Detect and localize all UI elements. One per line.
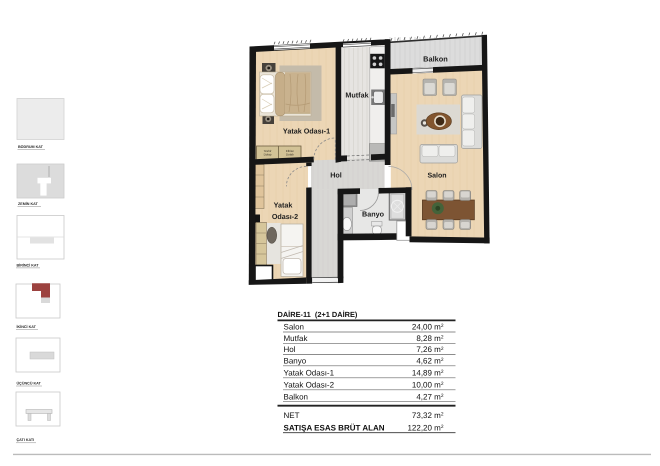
svg-text:7,26 m2: 7,26 m2 — [416, 345, 443, 354]
svg-text:Hol: Hol — [284, 345, 296, 354]
svg-text:Dolab: Dolab — [286, 153, 294, 157]
svg-text:BODRUM KAT: BODRUM KAT — [18, 145, 44, 149]
svg-text:Banyo: Banyo — [362, 210, 385, 219]
svg-text:ÇATI KATI: ÇATI KATI — [17, 438, 35, 442]
svg-text:Odası-2: Odası-2 — [272, 212, 298, 221]
svg-text:DAİRE-11 (2+1 DAİRE): DAİRE-11 (2+1 DAİRE) — [278, 310, 358, 319]
svg-text:4,27 m2: 4,27 m2 — [416, 392, 443, 401]
svg-text:ZEMİN KAT: ZEMİN KAT — [18, 201, 39, 206]
svg-text:Yatak Odası-1: Yatak Odası-1 — [283, 126, 330, 135]
svg-text:Salon: Salon — [284, 323, 304, 332]
svg-text:Hol: Hol — [330, 171, 342, 180]
svg-text:122,20 m2: 122,20 m2 — [407, 423, 443, 432]
svg-text:Dolap: Dolap — [264, 153, 272, 157]
svg-text:İKİNCİ KAT: İKİNCİ KAT — [17, 324, 37, 329]
svg-text:Balkon: Balkon — [284, 392, 308, 401]
svg-text:BİRİNCİ KAT: BİRİNCİ KAT — [17, 262, 40, 267]
svg-text:8,28 m2: 8,28 m2 — [416, 334, 443, 343]
svg-text:73,32 m2: 73,32 m2 — [412, 411, 444, 420]
svg-text:24,00 m2: 24,00 m2 — [412, 323, 444, 332]
svg-text:SATIŞA ESAS BRÜT ALAN: SATIŞA ESAS BRÜT ALAN — [284, 423, 385, 432]
svg-text:ÜÇÜNCÜ KAT: ÜÇÜNCÜ KAT — [17, 380, 42, 385]
svg-text:Yatak Odası-2: Yatak Odası-2 — [284, 380, 335, 389]
svg-text:Mutfak: Mutfak — [284, 334, 309, 343]
svg-text:Banyo: Banyo — [284, 356, 307, 365]
svg-text:NET: NET — [284, 411, 300, 420]
svg-text:Yatak: Yatak — [274, 200, 293, 209]
svg-text:Mutfak: Mutfak — [345, 90, 368, 99]
svg-text:14,89 m2: 14,89 m2 — [412, 368, 444, 377]
svg-text:Balkon: Balkon — [423, 55, 448, 64]
svg-text:Salon: Salon — [427, 172, 446, 180]
svg-text:Yatak Odası-1: Yatak Odası-1 — [284, 368, 335, 377]
svg-text:10,00 m2: 10,00 m2 — [412, 380, 444, 389]
svg-text:4,62 m2: 4,62 m2 — [416, 356, 443, 365]
